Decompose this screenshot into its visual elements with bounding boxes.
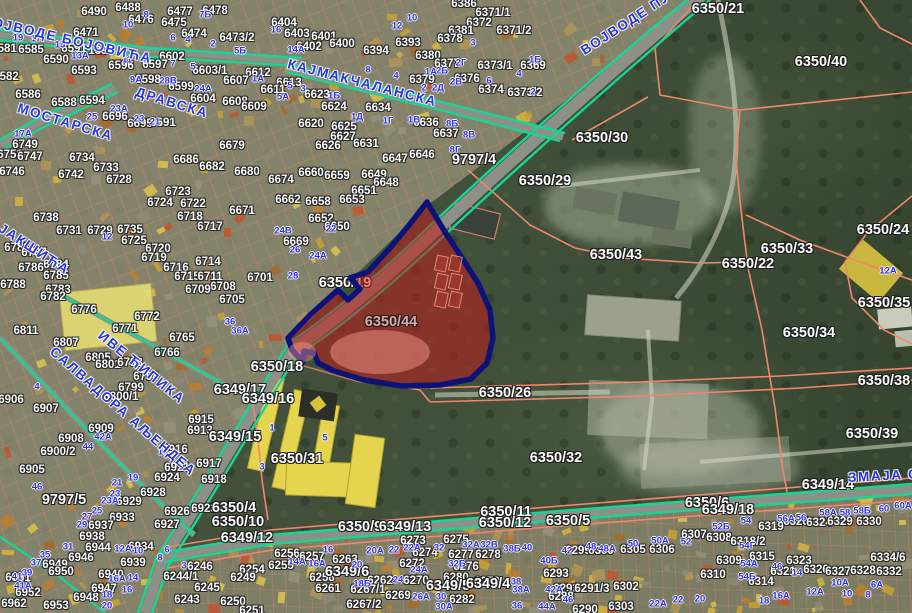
map-canvas[interactable]: 6350/19 64886490647764786476647564746473… <box>0 0 912 613</box>
